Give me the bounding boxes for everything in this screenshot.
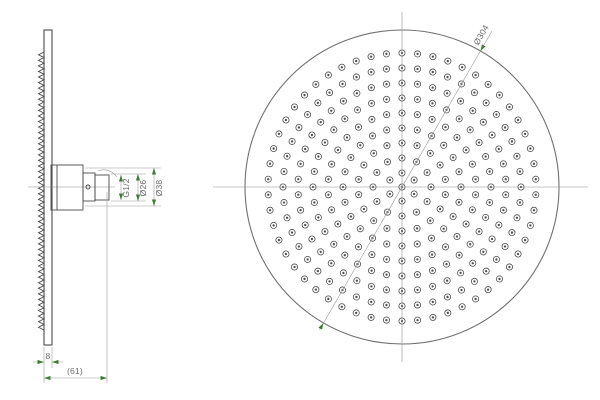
dimension-arrow: [44, 376, 51, 380]
nozzle-dot: [489, 170, 491, 172]
nozzle-dot: [385, 274, 387, 276]
nozzle-dot: [478, 230, 480, 232]
nozzle-dot: [487, 289, 489, 291]
nozzle-dot: [355, 296, 357, 298]
nozzle-dot: [416, 129, 418, 131]
nozzle-dot: [416, 289, 418, 291]
flange-diameter-label: Ø38: [154, 180, 164, 197]
nozzle-dot: [356, 92, 358, 94]
nozzle-dot: [293, 106, 295, 108]
nozzle-dot: [341, 66, 343, 68]
nozzle-dot: [317, 102, 319, 104]
nozzle-dot: [320, 251, 322, 253]
nozzle-dot: [355, 60, 357, 62]
nozzle-dot: [416, 274, 418, 276]
nozzle-dot: [370, 285, 372, 287]
nozzle-dot: [465, 149, 467, 151]
nozzle-dot: [474, 298, 476, 300]
nozzle-dot: [385, 319, 387, 321]
nozzle-dot: [306, 258, 308, 260]
nozzle-dot: [341, 83, 343, 85]
nozzle-dot: [357, 126, 359, 128]
nozzle-dot: [487, 83, 489, 85]
nozzle-dot: [478, 141, 480, 143]
nozzle-dot: [373, 220, 375, 222]
nozzle-dot: [267, 194, 269, 196]
nozzle-dot: [317, 270, 319, 272]
nozzle-dot: [385, 68, 387, 70]
nozzle-dot: [317, 155, 319, 157]
nozzle-dot: [386, 161, 388, 163]
nozzle-dot: [432, 86, 434, 88]
nozzle-dot: [376, 171, 378, 173]
nozzle-dot: [269, 209, 271, 211]
nozzle-dot: [431, 253, 433, 255]
nozzle-dot: [358, 193, 360, 195]
nozzle-dot: [385, 304, 387, 306]
nozzle-dot: [413, 193, 415, 195]
nozzle-dot: [474, 194, 476, 196]
nozzle-dot: [371, 118, 373, 120]
nozzle-dot: [303, 278, 305, 280]
nozzle-dot: [278, 239, 280, 241]
nozzle-dot: [504, 126, 506, 128]
nozzle-dot: [445, 263, 447, 265]
nozzle-dot: [516, 217, 518, 219]
nozzle-dot: [516, 155, 518, 157]
nozzle-dot: [389, 179, 391, 181]
nozzle-dot: [272, 147, 274, 149]
nozzle-dot: [498, 224, 500, 226]
nozzle-dot: [456, 235, 458, 237]
nozzle-dot: [413, 179, 415, 181]
nozzle-dot: [485, 270, 487, 272]
nozzle-dot: [431, 118, 433, 120]
nozzle-dot: [344, 118, 346, 120]
nozzle-dot: [535, 178, 537, 180]
nozzle-dot: [474, 178, 476, 180]
nozzle-dot: [359, 228, 361, 230]
nozzle-dot: [269, 163, 271, 165]
nozzle-dot: [495, 113, 497, 115]
nozzle-dot: [524, 133, 526, 135]
nozzle-dot: [355, 312, 357, 314]
nozzle-dot: [491, 238, 493, 240]
nozzle-dot: [283, 170, 285, 172]
nozzle-dot: [416, 68, 418, 70]
nozzle-dot: [485, 102, 487, 104]
side-view: G1/2 Ø26 Ø38 8 (61): [28, 30, 164, 383]
nozzle-dot: [502, 209, 504, 211]
nozzle-dot: [298, 245, 300, 247]
plate-thickness-label: 8: [46, 351, 51, 361]
nozzle-dot: [357, 246, 359, 248]
nozzle-dot: [458, 171, 460, 173]
nozzle-dot: [291, 231, 293, 233]
nozzle-dot: [315, 83, 317, 85]
nozzle-dot: [363, 164, 365, 166]
nozzle-dot: [519, 201, 521, 203]
nozzle-dot: [304, 224, 306, 226]
dimension-arrow: [152, 168, 156, 175]
nozzle-dot: [432, 301, 434, 303]
nozzle-dot: [291, 140, 293, 142]
nozzle-dot: [370, 316, 372, 318]
nozzle-dot: [337, 149, 339, 151]
nozzle-dot: [444, 246, 446, 248]
nozzle-dot: [285, 253, 287, 255]
nozzle-dot: [311, 134, 313, 136]
nozzle-dot: [327, 298, 329, 300]
nozzle-dot: [370, 269, 372, 271]
nozzle-dot: [342, 272, 344, 274]
nozzle-dot: [416, 243, 418, 245]
nozzle-dot: [327, 178, 329, 180]
nozzle-dot: [283, 201, 285, 203]
nozzle-dot: [344, 171, 346, 173]
nozzle-dot: [432, 285, 434, 287]
nozzle-dot: [386, 145, 388, 147]
nozzle-dot: [482, 251, 484, 253]
nozzle-dot: [313, 170, 315, 172]
nozzle-dot: [529, 224, 531, 226]
nozzle-dot: [344, 201, 346, 203]
dimension-arrow: [101, 376, 108, 380]
nozzle-dot: [328, 91, 330, 93]
nozzle-dot: [471, 209, 473, 211]
nozzle-dot: [472, 262, 474, 264]
nozzle-dot: [444, 126, 446, 128]
nozzle-dot: [389, 193, 391, 195]
nozzle-dot: [533, 209, 535, 211]
nozzle-dot: [452, 156, 454, 158]
nozzle-dot: [469, 129, 471, 131]
nozzle-dot: [416, 227, 418, 229]
nozzle-dot: [320, 121, 322, 123]
nozzle-dot: [267, 178, 269, 180]
nozzle-dot: [344, 254, 346, 256]
nozzle-dot: [313, 201, 315, 203]
drawing-canvas: G1/2 Ø26 Ø38 8 (61) Ø304: [0, 0, 600, 400]
nozzle-dot: [444, 178, 446, 180]
nozzle-dot: [327, 74, 329, 76]
nozzle-dot: [439, 208, 441, 210]
nozzle-dot: [370, 102, 372, 104]
nozzle-dot: [363, 208, 365, 210]
nozzle-dot: [426, 200, 428, 202]
technical-drawing: G1/2 Ø26 Ø38 8 (61) Ø304: [0, 0, 600, 400]
nozzle-dot: [359, 144, 361, 146]
nozzle-dot: [370, 301, 372, 303]
nozzle-dot: [508, 106, 510, 108]
nozzle-dot: [473, 280, 475, 282]
nozzle-dot: [371, 253, 373, 255]
nozzle-dot: [386, 227, 388, 229]
nozzle-dot: [333, 243, 335, 245]
nozzle-dot: [459, 100, 461, 102]
nozzle-dot: [286, 155, 288, 157]
nozzle-dot: [484, 216, 486, 218]
dimension-arrow: [152, 200, 156, 207]
nozzle-dot: [511, 140, 513, 142]
nozzle-dot: [333, 129, 335, 131]
nozzle-dot: [373, 152, 375, 154]
nozzle-dot: [443, 228, 445, 230]
nozzle-dot: [341, 306, 343, 308]
nozzle-dot: [446, 296, 448, 298]
nozzle-dot: [458, 201, 460, 203]
nozzle-dot: [446, 76, 448, 78]
nozzle-dot: [385, 258, 387, 260]
nozzle-dot: [376, 200, 378, 202]
nozzle-dot: [446, 92, 448, 94]
nozzle-dot: [446, 280, 448, 282]
nozzle-dot: [358, 178, 360, 180]
nozzle-dot: [371, 135, 373, 137]
nozzle-dot: [327, 194, 329, 196]
nozzle-dot: [385, 53, 387, 55]
nozzle-dot: [432, 71, 434, 73]
nozzle-dot: [346, 136, 348, 138]
nozzle-dot: [315, 289, 317, 291]
nozzle-dot: [330, 262, 332, 264]
diameter-dim-line: [320, 31, 493, 330]
nozzle-dot: [346, 235, 348, 237]
nozzle-dot: [337, 223, 339, 225]
nozzle-dot: [447, 312, 449, 314]
outer-diameter-label: Ø304: [471, 23, 490, 47]
nozzle-dot: [443, 144, 445, 146]
nozzle-dot: [297, 178, 299, 180]
nozzle-dot: [452, 215, 454, 217]
dimension-arrow: [38, 360, 45, 364]
nozzle-dot: [498, 148, 500, 150]
nozzle-dot: [370, 71, 372, 73]
nozzle-dot: [432, 316, 434, 318]
nozzle-dot: [431, 269, 433, 271]
nozzle-dot: [426, 171, 428, 173]
nozzle-dot: [324, 141, 326, 143]
nozzle-dot: [298, 126, 300, 128]
nozzle-dot: [324, 230, 326, 232]
nozzle-dot: [444, 193, 446, 195]
nozzle-dot: [317, 216, 319, 218]
nozzle-dot: [330, 163, 332, 165]
nozzle-dot: [293, 266, 295, 268]
nozzle-dot: [386, 129, 388, 131]
nozzle-dot: [355, 76, 357, 78]
dimension-arrow: [136, 195, 140, 202]
nozzle-zigzag-profile: [39, 52, 45, 330]
nozzle-dot: [458, 118, 460, 120]
nozzle-dot: [489, 201, 491, 203]
nozzle-dot: [519, 170, 521, 172]
nozzle-dot: [272, 224, 274, 226]
nozzle-dot: [504, 245, 506, 247]
front-view: Ø304: [213, 12, 588, 362]
nozzle-dot: [286, 217, 288, 219]
nozzle-dot: [482, 121, 484, 123]
nozzle-dot: [416, 83, 418, 85]
nozzle-dot: [429, 152, 431, 154]
nozzle-dot: [458, 254, 460, 256]
nozzle-dot: [472, 110, 474, 112]
mounting-flange: [51, 165, 83, 210]
nozzle-dot: [456, 136, 458, 138]
nozzle-dot: [299, 163, 301, 165]
nozzle-dot: [529, 147, 531, 149]
nozzle-dot: [278, 133, 280, 135]
connector-diameter-label: Ø26: [138, 180, 148, 197]
nozzle-dot: [306, 113, 308, 115]
nozzle-dot: [491, 134, 493, 136]
nozzle-dot: [350, 156, 352, 158]
nozzle-dot: [370, 86, 372, 88]
nozzle-dot: [416, 53, 418, 55]
nozzle-dot: [505, 178, 507, 180]
nozzle-dot: [330, 110, 332, 112]
nozzle-dot: [385, 113, 387, 115]
nozzle-dot: [498, 94, 500, 96]
nozzle-dot: [330, 209, 332, 211]
nozzle-dot: [447, 60, 449, 62]
nozzle-dot: [517, 119, 519, 121]
nozzle-dot: [429, 220, 431, 222]
nozzle-dot: [304, 148, 306, 150]
nozzle-dot: [431, 102, 433, 104]
nozzle-dot: [342, 100, 344, 102]
nozzle-dot: [385, 98, 387, 100]
nozzle-dot: [473, 91, 475, 93]
nozzle-dot: [386, 243, 388, 245]
nozzle-dot: [297, 194, 299, 196]
nozzle-dot: [416, 258, 418, 260]
nozzle-dot: [385, 289, 387, 291]
nozzle-dot: [416, 304, 418, 306]
overall-depth-label: (61): [67, 366, 83, 376]
nozzle-dot: [461, 66, 463, 68]
nozzle-dot: [350, 215, 352, 217]
nozzle-dot: [416, 98, 418, 100]
nozzle-dot: [356, 109, 358, 111]
nozzle-dot: [495, 258, 497, 260]
nozzle-dot: [465, 223, 467, 225]
nozzle-dot: [432, 55, 434, 57]
nozzle-dot: [416, 113, 418, 115]
nozzle-dot: [370, 55, 372, 57]
nozzle-dot: [484, 155, 486, 157]
nozzle-dot: [299, 209, 301, 211]
nozzle-dot: [385, 83, 387, 85]
nozzle-dot: [498, 278, 500, 280]
nozzle-dot: [459, 272, 461, 274]
nozzle-dot: [471, 163, 473, 165]
nozzle-dot: [535, 194, 537, 196]
nozzle-dot: [505, 194, 507, 196]
nozzle-dot: [415, 211, 417, 213]
nozzle-dot: [517, 253, 519, 255]
nozzle-dot: [469, 243, 471, 245]
nozzle-dot: [416, 145, 418, 147]
nozzle-dot: [328, 280, 330, 282]
nozzle-dot: [474, 74, 476, 76]
nozzle-dot: [311, 238, 313, 240]
dimension-arrow: [52, 360, 59, 364]
nozzle-dot: [430, 237, 432, 239]
thread-leader-curve: [98, 170, 117, 177]
nozzle-dot: [416, 319, 418, 321]
nozzle-dot: [502, 163, 504, 165]
nozzle-dot: [533, 163, 535, 165]
nozzle-dot: [524, 239, 526, 241]
nozzle-dot: [439, 164, 441, 166]
nozzle-dot: [461, 306, 463, 308]
nozzle-dot: [511, 231, 513, 233]
nozzle-dot: [303, 94, 305, 96]
dimension-arrow: [136, 174, 140, 181]
nozzle-dot: [356, 280, 358, 282]
nozzle-dot: [285, 119, 287, 121]
nozzle-dot: [460, 289, 462, 291]
dimension-arrow: [119, 175, 123, 182]
nozzle-dot: [508, 266, 510, 268]
